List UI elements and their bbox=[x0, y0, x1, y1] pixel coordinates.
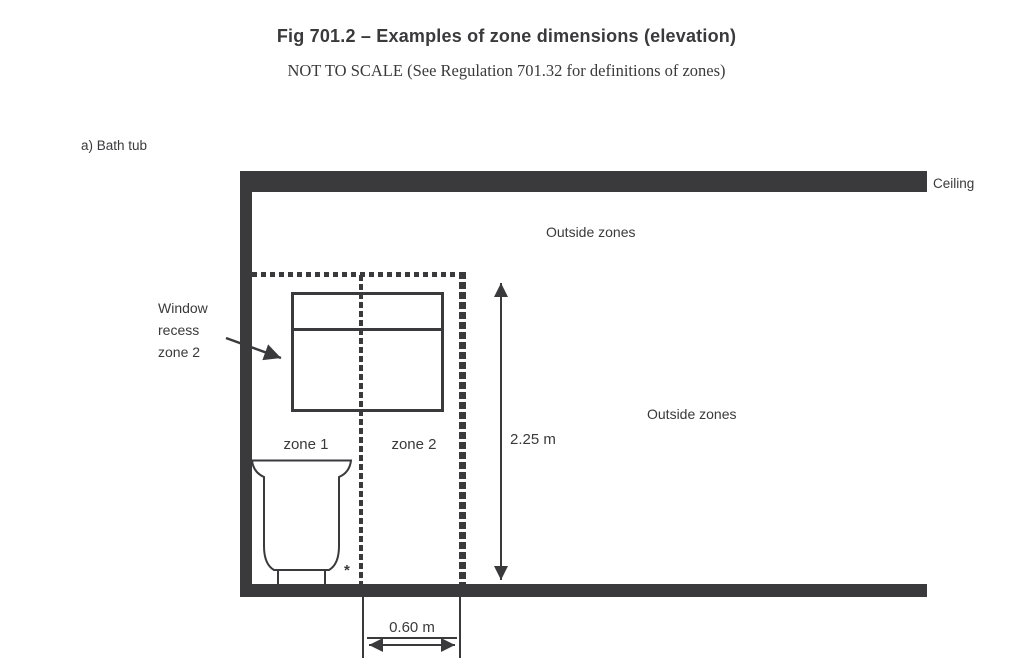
zone2-label: zone 2 bbox=[374, 436, 454, 453]
zone1-zone2-boundary-dashed-line bbox=[359, 275, 363, 584]
window-recess-zone2-label: Window recess zone 2 bbox=[158, 297, 208, 363]
height-dimension-label: 2.25 m bbox=[510, 431, 556, 448]
zone1-label: zone 1 bbox=[266, 436, 346, 453]
floor-bar bbox=[240, 584, 927, 597]
bath-tub-pedestal bbox=[278, 571, 325, 584]
window-recess-rect bbox=[291, 292, 444, 412]
ceiling-label: Ceiling bbox=[933, 176, 974, 191]
asterisk-note: * bbox=[344, 562, 350, 579]
zone0-label: zone 0 bbox=[263, 519, 343, 536]
extension-line-right bbox=[459, 597, 461, 658]
figure-subtitle: NOT TO SCALE (See Regulation 701.32 for … bbox=[0, 61, 1013, 81]
zone2-outer-boundary-dashed-line bbox=[459, 272, 466, 584]
bath-tub-outline bbox=[252, 461, 351, 571]
left-wall-bar bbox=[240, 171, 252, 597]
outside-zones-label-top: Outside zones bbox=[546, 224, 636, 240]
part-a-label: a) Bath tub bbox=[81, 138, 147, 153]
ceiling-bar bbox=[240, 171, 927, 192]
outside-zones-label-right: Outside zones bbox=[647, 406, 737, 422]
extension-line-left bbox=[362, 597, 364, 658]
figure-page: Fig 701.2 – Examples of zone dimensions … bbox=[0, 0, 1013, 667]
window-recess-arrow bbox=[226, 338, 281, 358]
width-dimension-label: 0.60 m bbox=[367, 619, 457, 639]
window-transom-line bbox=[294, 328, 441, 331]
figure-title: Fig 701.2 – Examples of zone dimensions … bbox=[0, 26, 1013, 47]
diagram-overlay bbox=[0, 0, 1013, 667]
